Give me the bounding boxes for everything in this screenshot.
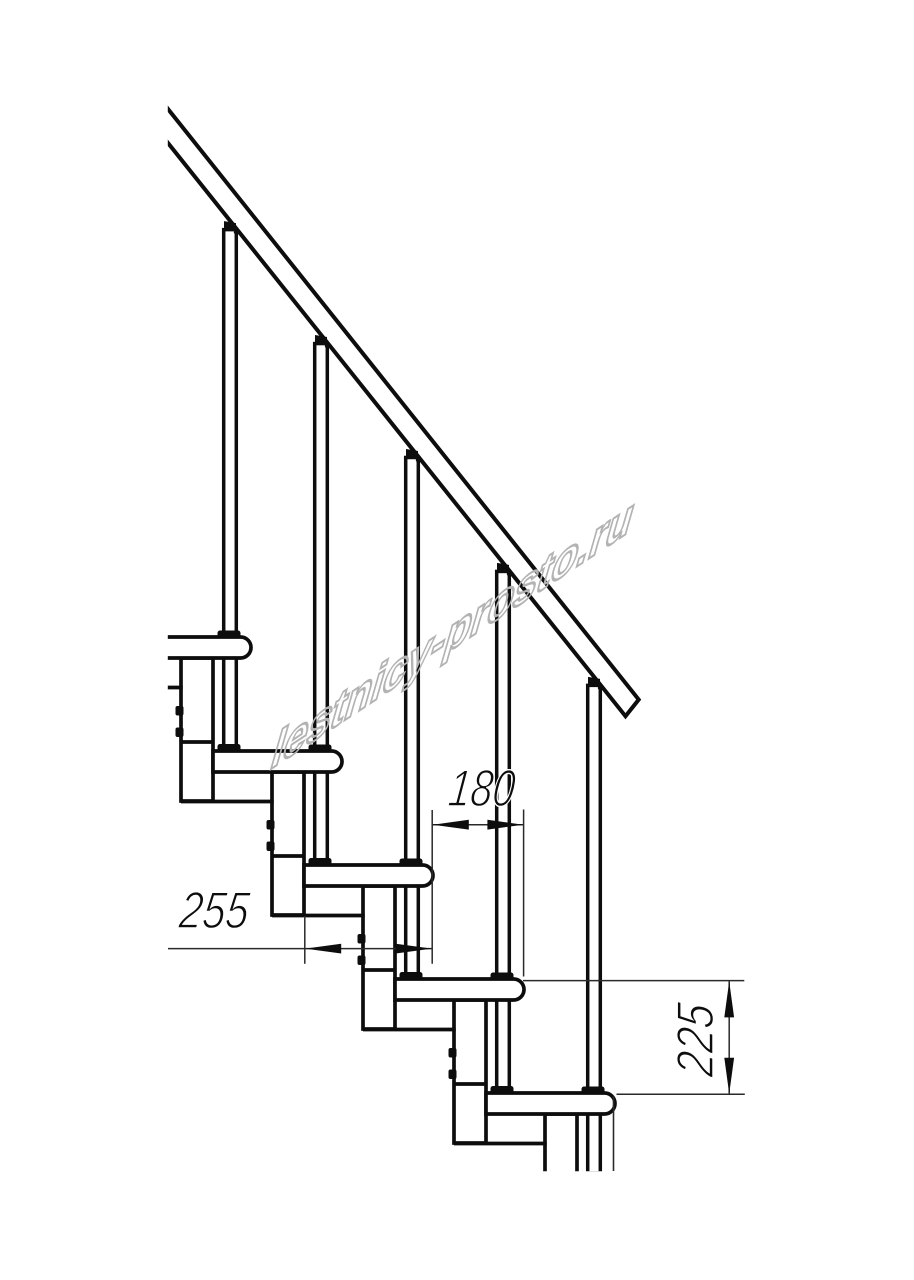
svg-text:180: 180 [446, 760, 519, 818]
svg-text:255: 255 [176, 882, 253, 940]
svg-text:225: 225 [667, 1000, 725, 1080]
